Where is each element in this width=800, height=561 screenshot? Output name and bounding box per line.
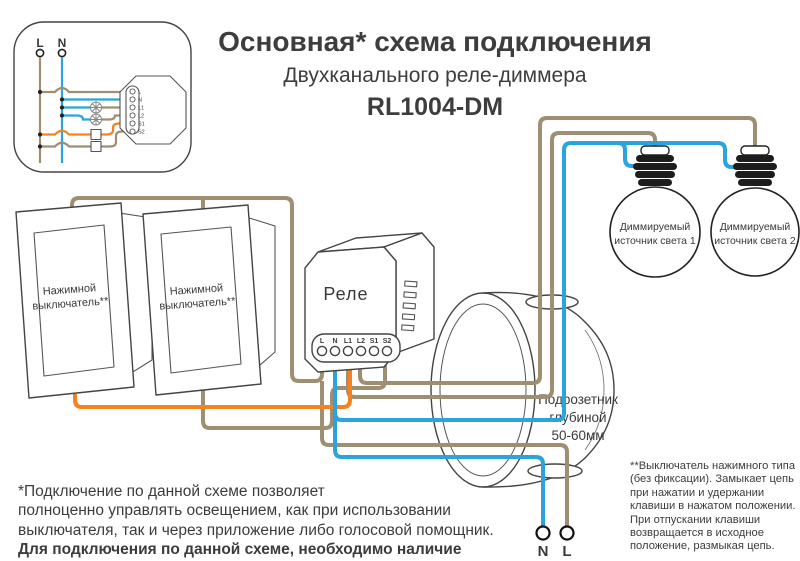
footnote-left-normal: *Подключение по данной схеме позволяет п… (18, 483, 494, 539)
inset-lamp1-symbol (91, 102, 102, 113)
svg-text:глубиной: глубиной (549, 410, 606, 425)
supply-n-label: N (538, 543, 549, 560)
page-title: Основная* схема подключения (205, 26, 665, 58)
footnote-right: **Выключатель нажимного типа (без фиксац… (630, 460, 800, 554)
dimmable-bulb-1: Диммируемый источник света 1 (610, 146, 700, 277)
svg-text:N: N (332, 338, 337, 345)
svg-text:50-60мм: 50-60мм (551, 428, 604, 443)
svg-text:источник света 1: источник света 1 (614, 235, 696, 247)
supply-l-label: L (562, 543, 571, 560)
supply-n-terminal (537, 527, 550, 540)
inset-switch1-symbol (91, 130, 101, 140)
inset-n-terminal (58, 49, 65, 56)
supply-l-terminal (561, 527, 574, 540)
footnote-left-bold: Для подключения по данной схеме, необход… (18, 541, 481, 561)
svg-text:L: L (138, 90, 141, 96)
relay-label: Реле (323, 284, 368, 304)
inset-switch2-symbol (91, 142, 101, 152)
model-number: RL1004-DM (205, 93, 665, 121)
junction-box-bottom-collar (528, 464, 582, 478)
svg-text:S2: S2 (138, 130, 145, 136)
page-subtitle: Двухканального реле-диммера (205, 63, 665, 88)
footnote-left: *Подключение по данной схеме позволяет п… (18, 462, 498, 561)
push-switch-1: Нажимной выключатель** (16, 203, 152, 398)
svg-text:N: N (138, 98, 142, 104)
svg-text:Диммируемый: Диммируемый (720, 221, 791, 233)
inset-relay-device: L N L1 L2 S1 S2 (120, 76, 186, 144)
wire-neutral-bulb1-drop (618, 143, 636, 166)
svg-text:S2: S2 (383, 338, 392, 345)
svg-text:L1: L1 (344, 338, 352, 345)
svg-text:S1: S1 (370, 338, 379, 345)
svg-text:источник света 2: источник света 2 (714, 235, 796, 247)
bulb2-base (733, 146, 777, 186)
svg-text:L: L (320, 338, 325, 345)
wiring-diagram-page: L N (0, 0, 800, 561)
svg-text:L2: L2 (138, 114, 144, 120)
mains-supply: N L (537, 527, 574, 561)
svg-text:Диммируемый: Диммируемый (620, 221, 691, 233)
relay-device: Реле L N L1 L2 S1 S2 (305, 233, 434, 372)
inset-n-label: N (58, 36, 67, 50)
svg-text:L1: L1 (138, 106, 144, 112)
schematic-inset: L N (14, 22, 191, 172)
svg-text:L2: L2 (357, 338, 365, 345)
inset-l-terminal (36, 49, 43, 56)
title-block: Основная* схема подключения Двухканально… (205, 26, 665, 121)
inset-l-label: L (36, 36, 43, 50)
dimmable-bulb-2: Диммируемый источник света 2 (711, 146, 799, 276)
push-switch-2: Нажимной выключатель** (143, 205, 275, 395)
bulb1-base (633, 146, 677, 186)
inset-lamp2-symbol (91, 114, 102, 125)
svg-text:S1: S1 (138, 122, 145, 128)
